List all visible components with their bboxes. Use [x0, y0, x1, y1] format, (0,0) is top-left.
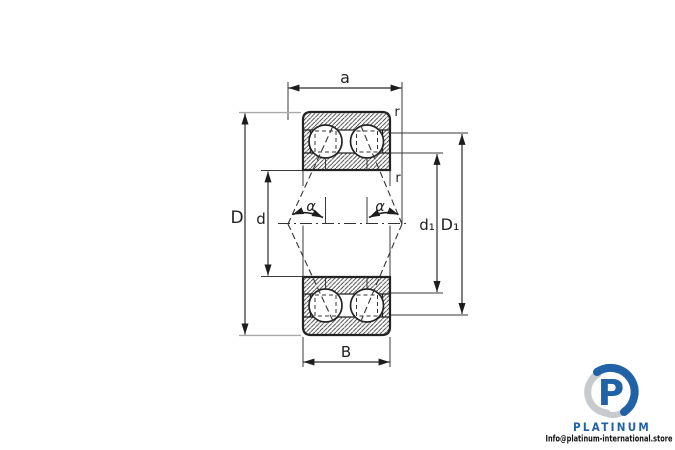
dim-label-d: d — [256, 210, 266, 228]
bearing-diagram-svg: a D d d₁ D₁ B r r α α — [0, 0, 675, 450]
ball-bottom-right — [351, 289, 384, 322]
platinum-logo: P PLATINUM Info@platinum-international.s… — [546, 368, 673, 445]
logo-p-icon: P — [588, 368, 635, 415]
dim-label-D1: D₁ — [441, 215, 460, 234]
dim-label-B: B — [341, 343, 351, 361]
dim-label-a: a — [340, 68, 350, 87]
bearing-top-section — [303, 112, 390, 170]
bearing-bottom-section — [303, 277, 390, 335]
dim-label-alpha-right: α — [375, 199, 385, 215]
screenshot-root: a D d d₁ D₁ B r r α α — [0, 0, 675, 450]
dim-label-r-side: r — [395, 171, 401, 186]
dim-label-alpha-left: α — [306, 199, 316, 215]
dim-label-D: D — [230, 208, 243, 228]
logo-wordmark: PLATINUM — [573, 420, 651, 434]
ball-bottom-left — [309, 289, 342, 322]
logo-contact-email: Info@platinum-international.store — [546, 435, 673, 445]
dim-label-d1: d₁ — [419, 216, 435, 234]
dim-label-r-top: r — [394, 105, 400, 120]
logo-letter: P — [598, 373, 624, 414]
ball-top-right — [351, 125, 384, 158]
dimension-B: B — [303, 337, 390, 367]
